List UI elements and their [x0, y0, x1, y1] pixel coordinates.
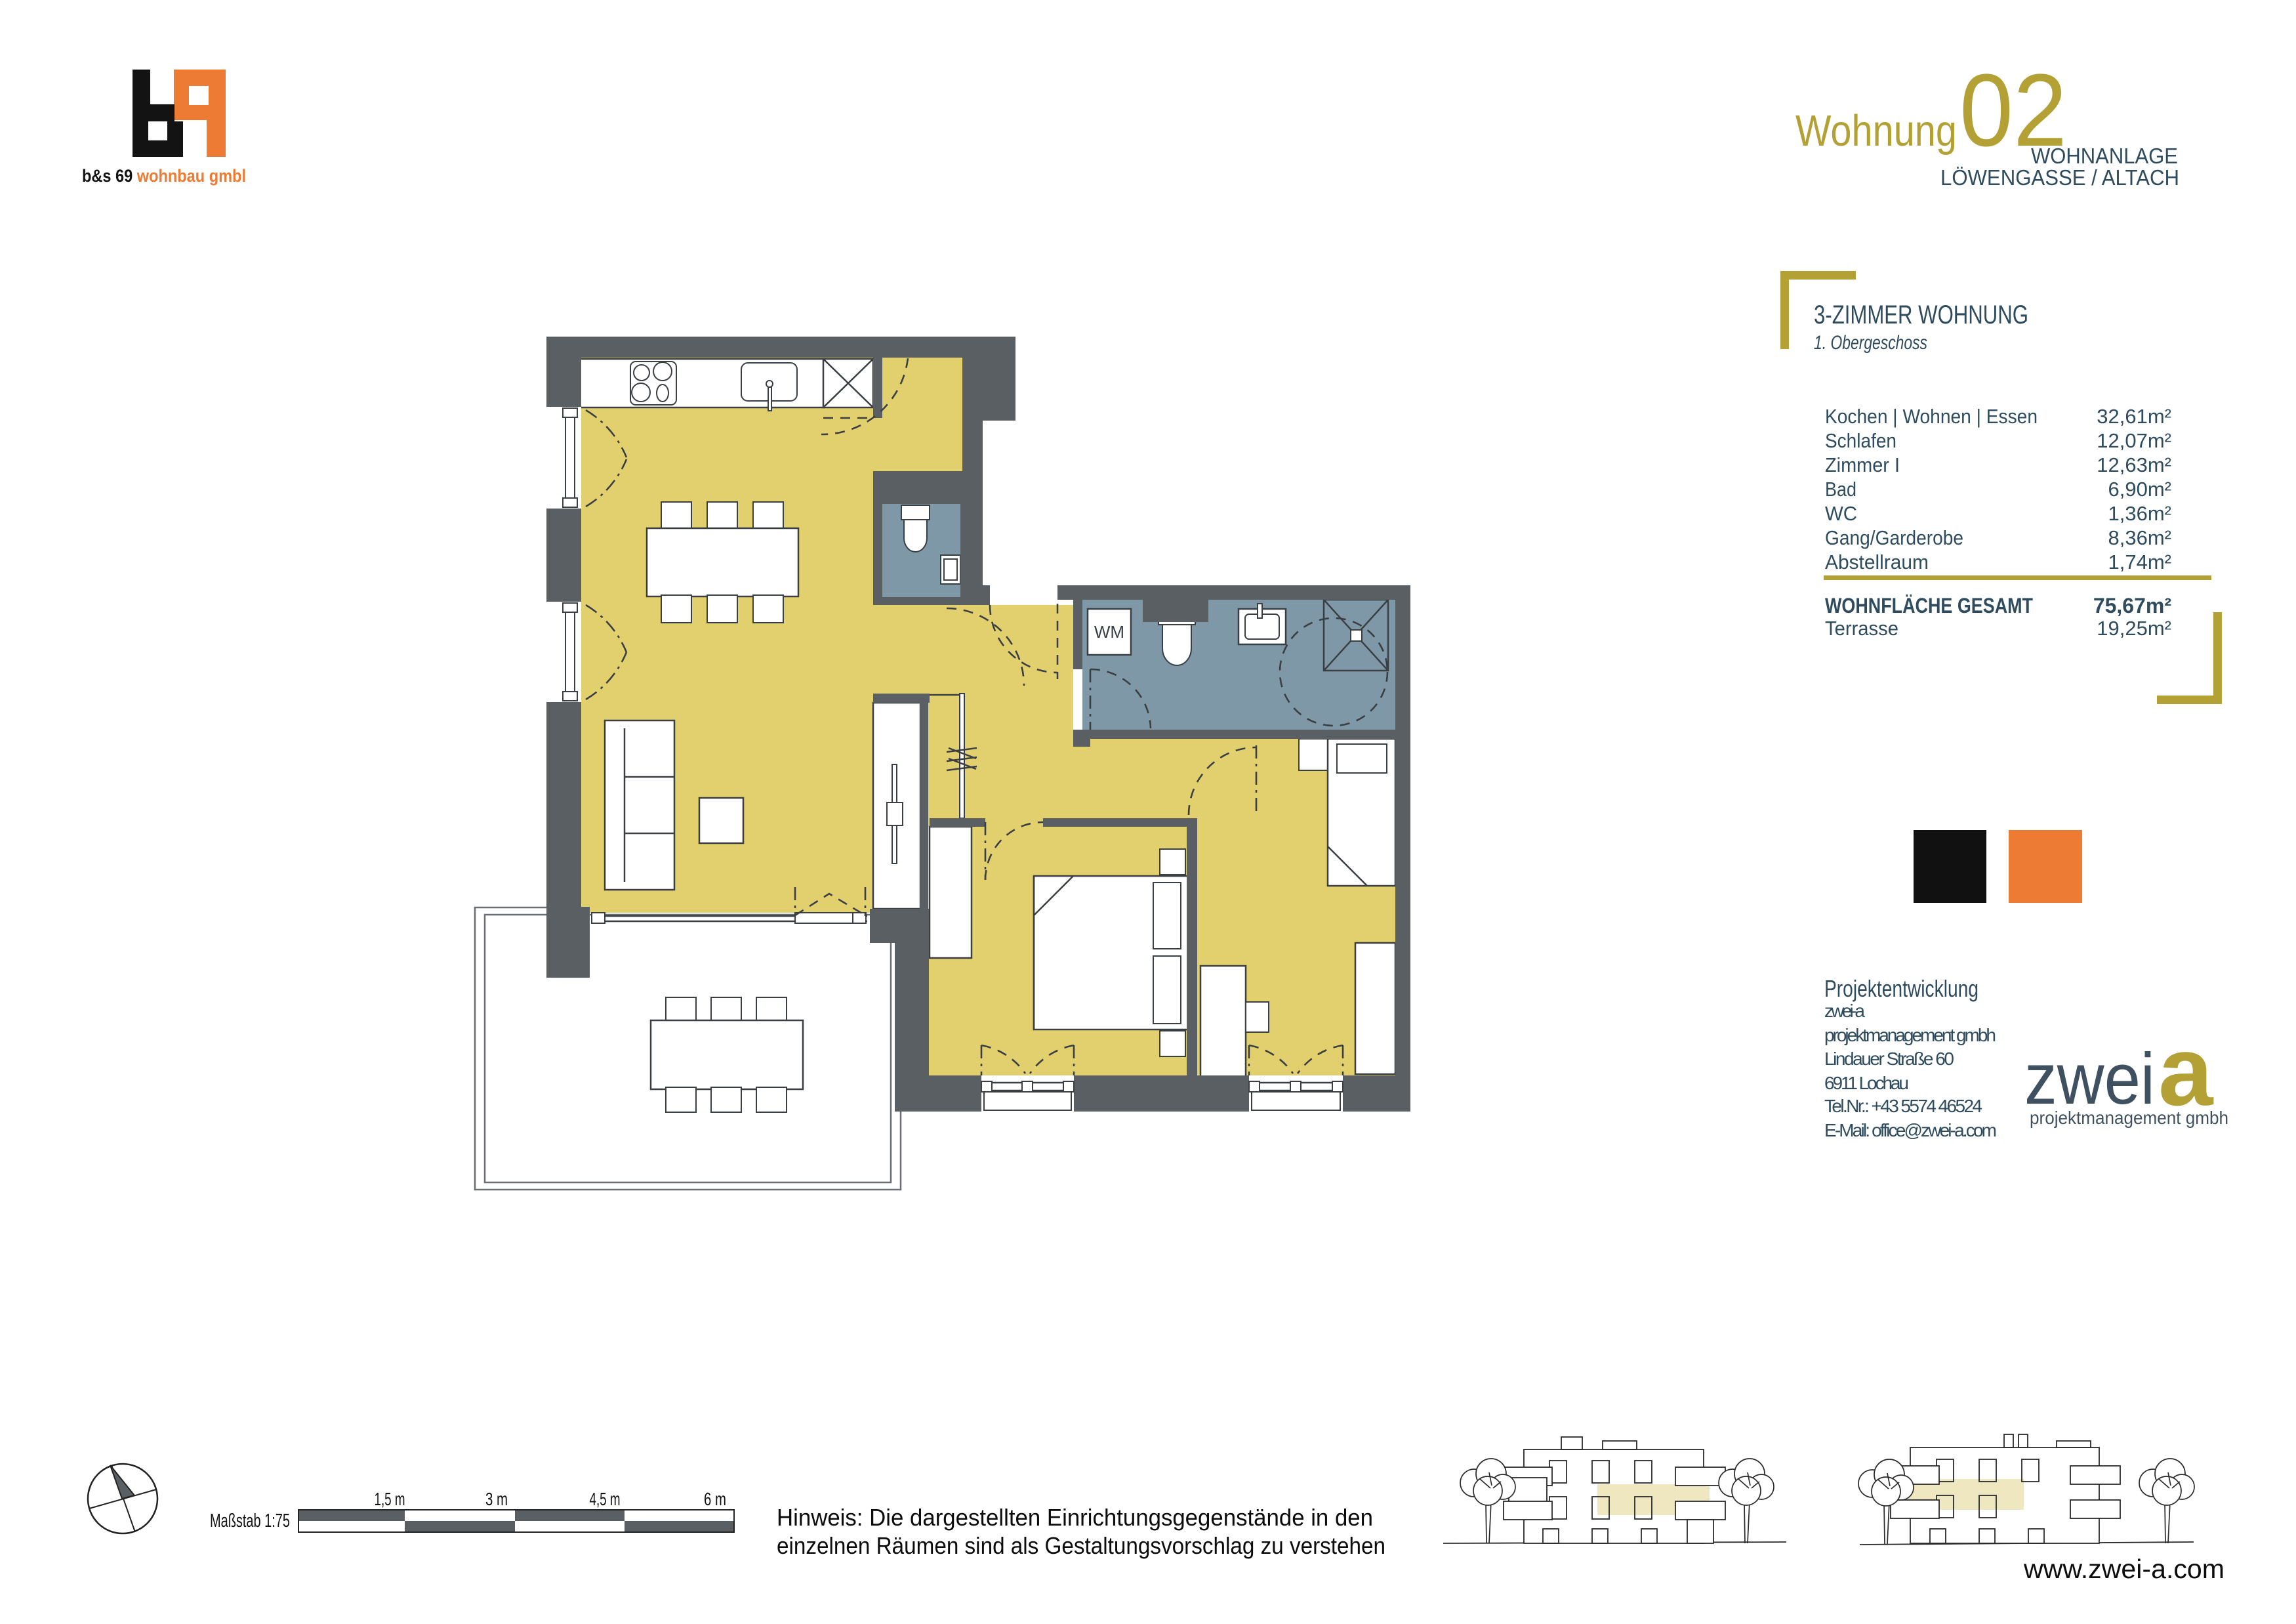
svg-text:19,25m²: 19,25m²	[2097, 617, 2171, 640]
svg-text:projektmanagement gmbh: projektmanagement gmbh	[2030, 1108, 2228, 1128]
svg-text:Hinweis: Die dargestellten Ein: Hinweis: Die dargestellten Einrichtungsg…	[777, 1504, 1373, 1531]
svg-text:1,74m²: 1,74m²	[2108, 551, 2171, 573]
svg-text:75,67m²: 75,67m²	[2093, 594, 2171, 617]
svg-text:Kochen | Wohnen | Essen: Kochen | Wohnen | Essen	[1825, 405, 2038, 428]
svg-text:Terrasse: Terrasse	[1825, 617, 1898, 640]
svg-text:Tel.Nr.: +43 5574 46524: Tel.Nr.: +43 5574 46524	[1824, 1096, 1982, 1116]
svg-text:6,90m²: 6,90m²	[2108, 478, 2171, 501]
svg-text:Gang/Garderobe: Gang/Garderobe	[1825, 526, 1963, 549]
svg-text:6 m: 6 m	[704, 1489, 726, 1509]
svg-text:3 m: 3 m	[485, 1489, 508, 1509]
svg-text:Wohnung: Wohnung	[1795, 106, 1957, 156]
svg-text:6911 Lochau: 6911 Lochau	[1824, 1073, 1909, 1093]
svg-text:zwei-a: zwei-a	[1824, 1001, 1865, 1021]
svg-text:WC: WC	[1825, 502, 1857, 525]
svg-text:Schlafen: Schlafen	[1825, 429, 1896, 452]
svg-text:WM: WM	[1094, 622, 1124, 642]
svg-text:1,36m²: 1,36m²	[2108, 502, 2171, 525]
svg-text:Projektentwicklung: Projektentwicklung	[1824, 975, 1978, 1002]
svg-text:WOHNANLAGE: WOHNANLAGE	[2031, 144, 2178, 168]
svg-text:b&s 69 wohnbau gmbl: b&s 69 wohnbau gmbl	[82, 166, 246, 186]
svg-text:E-Mail: office@zwei-a.com: E-Mail: office@zwei-a.com	[1824, 1120, 1997, 1140]
svg-text:32,61m²: 32,61m²	[2097, 405, 2171, 428]
svg-text:3-ZIMMER WOHNUNG: 3-ZIMMER WOHNUNG	[1814, 301, 2028, 329]
svg-text:LÖWENGASSE / ALTACH: LÖWENGASSE / ALTACH	[1940, 165, 2179, 190]
svg-text:www.zwei-a.com: www.zwei-a.com	[2023, 1554, 2224, 1584]
svg-text:einzelnen Räumen sind als Gest: einzelnen Räumen sind als Gestaltungsvor…	[777, 1532, 1385, 1559]
svg-text:12,07m²: 12,07m²	[2097, 429, 2171, 452]
svg-text:Maßstab 1:75: Maßstab 1:75	[210, 1510, 290, 1531]
svg-text:WOHNFLÄCHE GESAMT: WOHNFLÄCHE GESAMT	[1825, 594, 2033, 617]
svg-text:Bad: Bad	[1825, 478, 1856, 501]
svg-text:8,36m²: 8,36m²	[2108, 526, 2171, 549]
svg-text:1. Obergeschoss: 1. Obergeschoss	[1814, 332, 1927, 354]
svg-text:projektmanagement gmbh: projektmanagement gmbh	[1824, 1025, 1996, 1045]
svg-text:1,5 m: 1,5 m	[375, 1489, 405, 1509]
svg-text:4,5 m: 4,5 m	[590, 1489, 621, 1509]
svg-text:Abstellraum: Abstellraum	[1825, 551, 1929, 573]
svg-text:12,63m²: 12,63m²	[2097, 453, 2171, 476]
svg-text:Zimmer I: Zimmer I	[1825, 453, 1900, 476]
svg-text:Lindauer Straße 60: Lindauer Straße 60	[1824, 1049, 1954, 1069]
